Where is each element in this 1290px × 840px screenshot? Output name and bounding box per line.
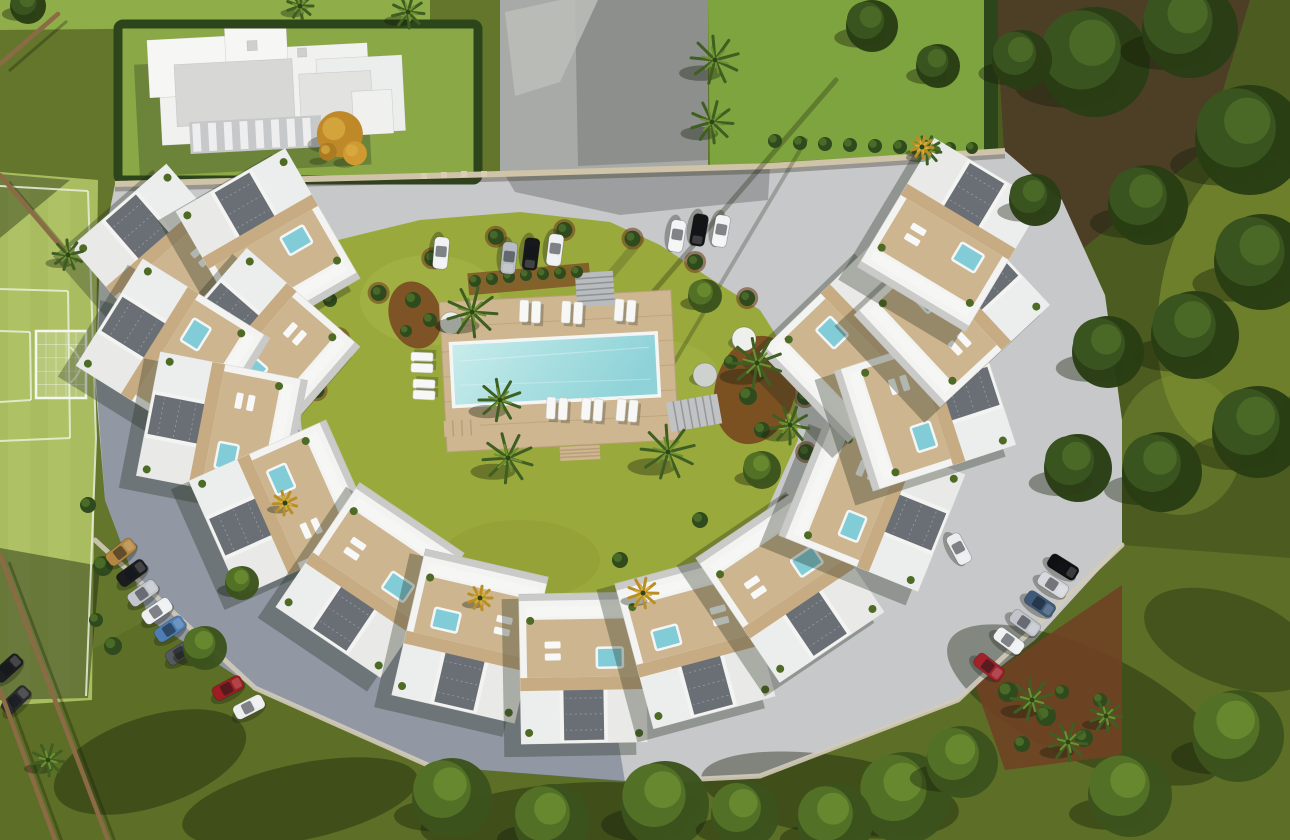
tree-canopy-highlight (945, 734, 975, 764)
concrete-plot-dark (575, 0, 708, 166)
terrace-lounger (545, 641, 561, 648)
sun-lounger (626, 300, 640, 326)
wall-post (421, 173, 427, 179)
tree-canopy-highlight (1069, 20, 1115, 66)
palm-crown (66, 253, 71, 258)
palm-crown (1030, 698, 1035, 703)
sun-lounger (558, 398, 571, 424)
palm-crown (920, 145, 925, 150)
tree-canopy-highlight (1023, 180, 1045, 202)
bush (740, 388, 750, 398)
tree-canopy-highlight (1236, 397, 1275, 436)
terrace-lounger (545, 653, 561, 660)
palm-crown (478, 596, 483, 601)
tree (1088, 753, 1172, 837)
sun-lounger (546, 397, 559, 423)
tree-canopy-highlight (195, 631, 213, 649)
car-hood-highlight (548, 255, 559, 264)
tree-canopy-highlight (817, 793, 849, 825)
awning-stripe (224, 122, 233, 150)
aerial-site-plan-render (0, 0, 1290, 840)
planter-bush (689, 256, 697, 264)
bush (819, 138, 827, 146)
stair-tread (462, 420, 463, 436)
pitch-line (30, 332, 31, 400)
villa-roof-block (174, 59, 295, 127)
stairs (560, 445, 601, 461)
lounger (558, 398, 568, 420)
bush (487, 274, 494, 281)
car-glass (671, 228, 684, 241)
awning-stripe (271, 119, 280, 147)
bush (967, 143, 974, 150)
stairs (444, 419, 481, 437)
villa-roof-block (297, 48, 306, 57)
lounger (628, 400, 639, 423)
tree (1072, 316, 1144, 388)
sun-lounger (581, 398, 595, 424)
bush (572, 267, 579, 274)
tree-canopy-highlight (1008, 37, 1033, 62)
tree-canopy-highlight (1129, 174, 1163, 208)
sun-lounger (531, 301, 544, 326)
lounger (593, 399, 604, 422)
wall-post (481, 171, 487, 177)
tree (1192, 690, 1284, 782)
bush (406, 293, 415, 302)
tree-canopy-highlight (860, 6, 882, 28)
tree (183, 626, 227, 670)
sun-lounger (593, 399, 607, 425)
tree (1108, 165, 1188, 245)
palm-crown (406, 10, 411, 15)
awning-stripe (208, 123, 217, 151)
palm-tree-shadow (679, 66, 722, 81)
tree-canopy-highlight (729, 789, 758, 818)
jacuzzi (431, 608, 461, 633)
sun-lounger (561, 301, 574, 327)
tree (846, 0, 898, 52)
awning-stripe (239, 121, 248, 149)
sun-lounger (614, 299, 628, 325)
car-glass (693, 222, 706, 235)
tree (688, 279, 722, 313)
awning-stripe (192, 123, 201, 151)
lounger (573, 302, 583, 324)
tree-canopy-highlight (697, 283, 711, 297)
planter-bush (741, 292, 749, 300)
lounger (413, 390, 435, 400)
round-table (693, 363, 717, 387)
bush (1015, 737, 1024, 746)
tree-canopy-highlight (1224, 98, 1270, 144)
tree-canopy-highlight (1062, 442, 1091, 471)
lounger (581, 398, 592, 421)
tree-canopy-highlight (928, 49, 946, 67)
lounger (411, 363, 433, 373)
car-hood-highlight (503, 263, 514, 272)
lounger (614, 299, 625, 322)
tree-canopy-highlight (1174, 301, 1211, 338)
tree (1151, 291, 1239, 379)
tree-canopy-highlight (234, 570, 248, 584)
tree-canopy-highlight (534, 793, 566, 825)
palm-crown (470, 310, 475, 315)
palm-tree-shadow (1001, 705, 1039, 718)
car-hood-highlight (524, 259, 535, 268)
car-hood-highlight (670, 241, 681, 250)
sun-lounger (627, 400, 641, 426)
bush (894, 141, 902, 149)
planter-bush (373, 287, 381, 295)
bush (613, 553, 622, 562)
sun-lounger (615, 399, 629, 425)
wall-post (461, 171, 467, 177)
lounger (616, 399, 627, 422)
car-glass (503, 250, 515, 262)
sun-lounger (411, 360, 436, 373)
bush (555, 268, 562, 275)
palm-crown (506, 456, 511, 461)
palm-crown (641, 591, 646, 596)
bush (538, 269, 545, 276)
car-glass (715, 223, 728, 236)
bush (470, 276, 477, 283)
wall-post (441, 172, 447, 178)
palm-tree-shadow (628, 458, 677, 475)
sun-lounger (413, 387, 439, 400)
palm-crown (298, 4, 303, 9)
car-glass (435, 246, 447, 258)
bush (401, 326, 408, 333)
tree (1122, 432, 1202, 512)
sun-lounger (573, 302, 586, 328)
tree (1009, 174, 1061, 226)
bush (424, 314, 432, 322)
tree (412, 758, 492, 838)
gravel-roof (563, 688, 604, 741)
lounger (561, 301, 571, 323)
palm-crown (498, 398, 503, 403)
bush (693, 513, 702, 522)
bush (521, 270, 528, 277)
lounger (531, 301, 541, 323)
tree (916, 44, 960, 88)
stair-tread (471, 420, 472, 436)
tree-canopy-highlight (753, 455, 769, 471)
planter-bush (490, 231, 498, 239)
villa-roof-block (247, 40, 258, 51)
tree-canopy-highlight (433, 767, 467, 801)
bush (769, 135, 777, 143)
tree (1044, 434, 1112, 502)
palm-crown (46, 758, 51, 763)
bush (90, 614, 98, 622)
bush (105, 638, 115, 648)
palm-crown (283, 501, 288, 506)
lounger (626, 300, 637, 323)
scene-canvas (0, 0, 1290, 840)
pitch-line (0, 331, 30, 332)
tree-canopy-highlight (1239, 225, 1279, 265)
planter-bush (558, 224, 566, 232)
awning-stripe (287, 118, 296, 146)
tree (743, 451, 781, 489)
tree (992, 30, 1052, 90)
palm-crown (1066, 740, 1071, 745)
car-hood-highlight (435, 259, 446, 268)
palm-crown (788, 423, 793, 428)
tree-canopy-highlight (1091, 324, 1121, 354)
tree (225, 566, 259, 600)
bush (1000, 684, 1011, 695)
tree-canopy-highlight (1216, 701, 1255, 740)
palm-crown (755, 361, 760, 366)
palm-crown (710, 120, 715, 125)
stair-tread (453, 420, 454, 436)
palm-crown (713, 58, 718, 63)
bush (95, 558, 106, 569)
bush (81, 498, 90, 507)
lounger (411, 352, 433, 362)
neighbor-villa (132, 19, 407, 179)
tree-canopy-highlight (644, 771, 681, 808)
planter-bush (627, 233, 635, 241)
bush (869, 140, 877, 148)
palm-crown (1104, 714, 1109, 719)
bush (794, 137, 802, 145)
swimming-pool (450, 333, 659, 407)
car-glass (525, 246, 537, 258)
bush (844, 139, 852, 147)
sun-lounger (411, 349, 436, 362)
awning-stripe (255, 120, 264, 148)
bush (755, 423, 764, 432)
tree (926, 726, 998, 798)
palm-frond (483, 458, 508, 460)
tree-canopy-highlight (1110, 763, 1145, 798)
tree-canopy-highlight (1143, 441, 1177, 475)
sun-lounger (519, 300, 532, 325)
palm-crown (666, 450, 671, 455)
lounger (519, 300, 529, 322)
car-glass (549, 242, 561, 254)
lounger (546, 397, 556, 419)
bush (1056, 686, 1064, 694)
